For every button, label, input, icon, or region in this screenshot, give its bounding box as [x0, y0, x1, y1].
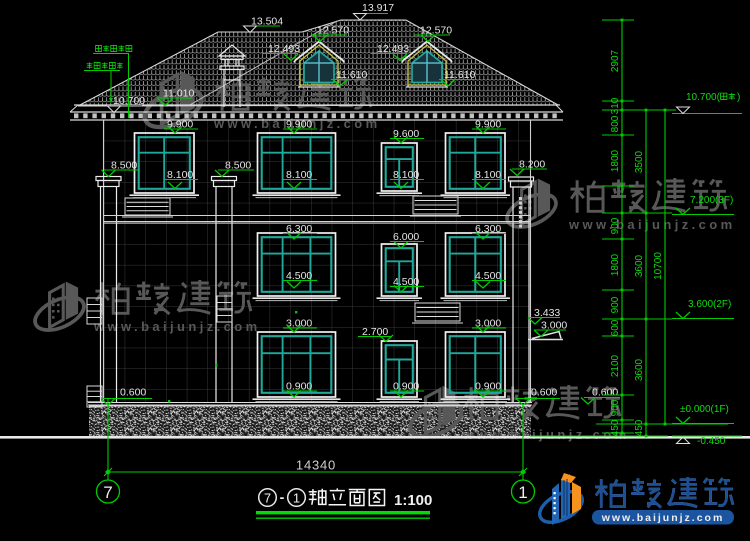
svg-text:www.baijunjz.com: www.baijunjz.com — [462, 427, 630, 442]
svg-text:310: 310 — [610, 97, 621, 114]
svg-text:-: - — [280, 489, 285, 505]
svg-text:www.baijunjz.com: www.baijunjz.com — [601, 512, 725, 524]
svg-text:1:100: 1:100 — [394, 492, 432, 509]
svg-text:900: 900 — [610, 296, 621, 313]
svg-text:450: 450 — [610, 419, 621, 436]
svg-text:0.600: 0.600 — [120, 387, 146, 399]
svg-text:450: 450 — [634, 419, 645, 436]
svg-text:3.600(2F): 3.600(2F) — [688, 299, 731, 310]
svg-text:13.917: 13.917 — [362, 2, 394, 14]
svg-text:±0.000(1F): ±0.000(1F) — [680, 404, 729, 415]
svg-text:1: 1 — [518, 483, 527, 502]
svg-text:600: 600 — [610, 319, 621, 336]
svg-text:3600: 3600 — [634, 254, 645, 277]
svg-text:0.600: 0.600 — [592, 387, 618, 399]
svg-text:7: 7 — [103, 483, 112, 502]
svg-text:800: 800 — [610, 115, 621, 132]
svg-text:0.600: 0.600 — [531, 387, 557, 399]
svg-text:10700: 10700 — [653, 252, 664, 280]
svg-text:3500: 3500 — [634, 150, 645, 173]
svg-text:1800: 1800 — [610, 149, 621, 172]
svg-text:900: 900 — [610, 217, 621, 234]
svg-text:14340: 14340 — [296, 458, 336, 473]
svg-text:): ) — [737, 92, 740, 103]
svg-text:1800: 1800 — [610, 253, 621, 276]
svg-text:3600: 3600 — [634, 358, 645, 381]
svg-text:www.baijunjz.com: www.baijunjz.com — [93, 319, 261, 334]
svg-text:7: 7 — [264, 491, 271, 506]
svg-text:900: 900 — [610, 399, 621, 416]
svg-text:7.200(3F): 7.200(3F) — [690, 195, 733, 206]
svg-text:2100: 2100 — [610, 354, 621, 377]
svg-text:10.700(: 10.700( — [686, 92, 721, 103]
svg-text:1: 1 — [293, 491, 300, 506]
svg-text:2907: 2907 — [610, 49, 621, 72]
svg-text:www.baijunjz.com: www.baijunjz.com — [568, 217, 736, 232]
svg-text:-0.450: -0.450 — [697, 436, 726, 447]
